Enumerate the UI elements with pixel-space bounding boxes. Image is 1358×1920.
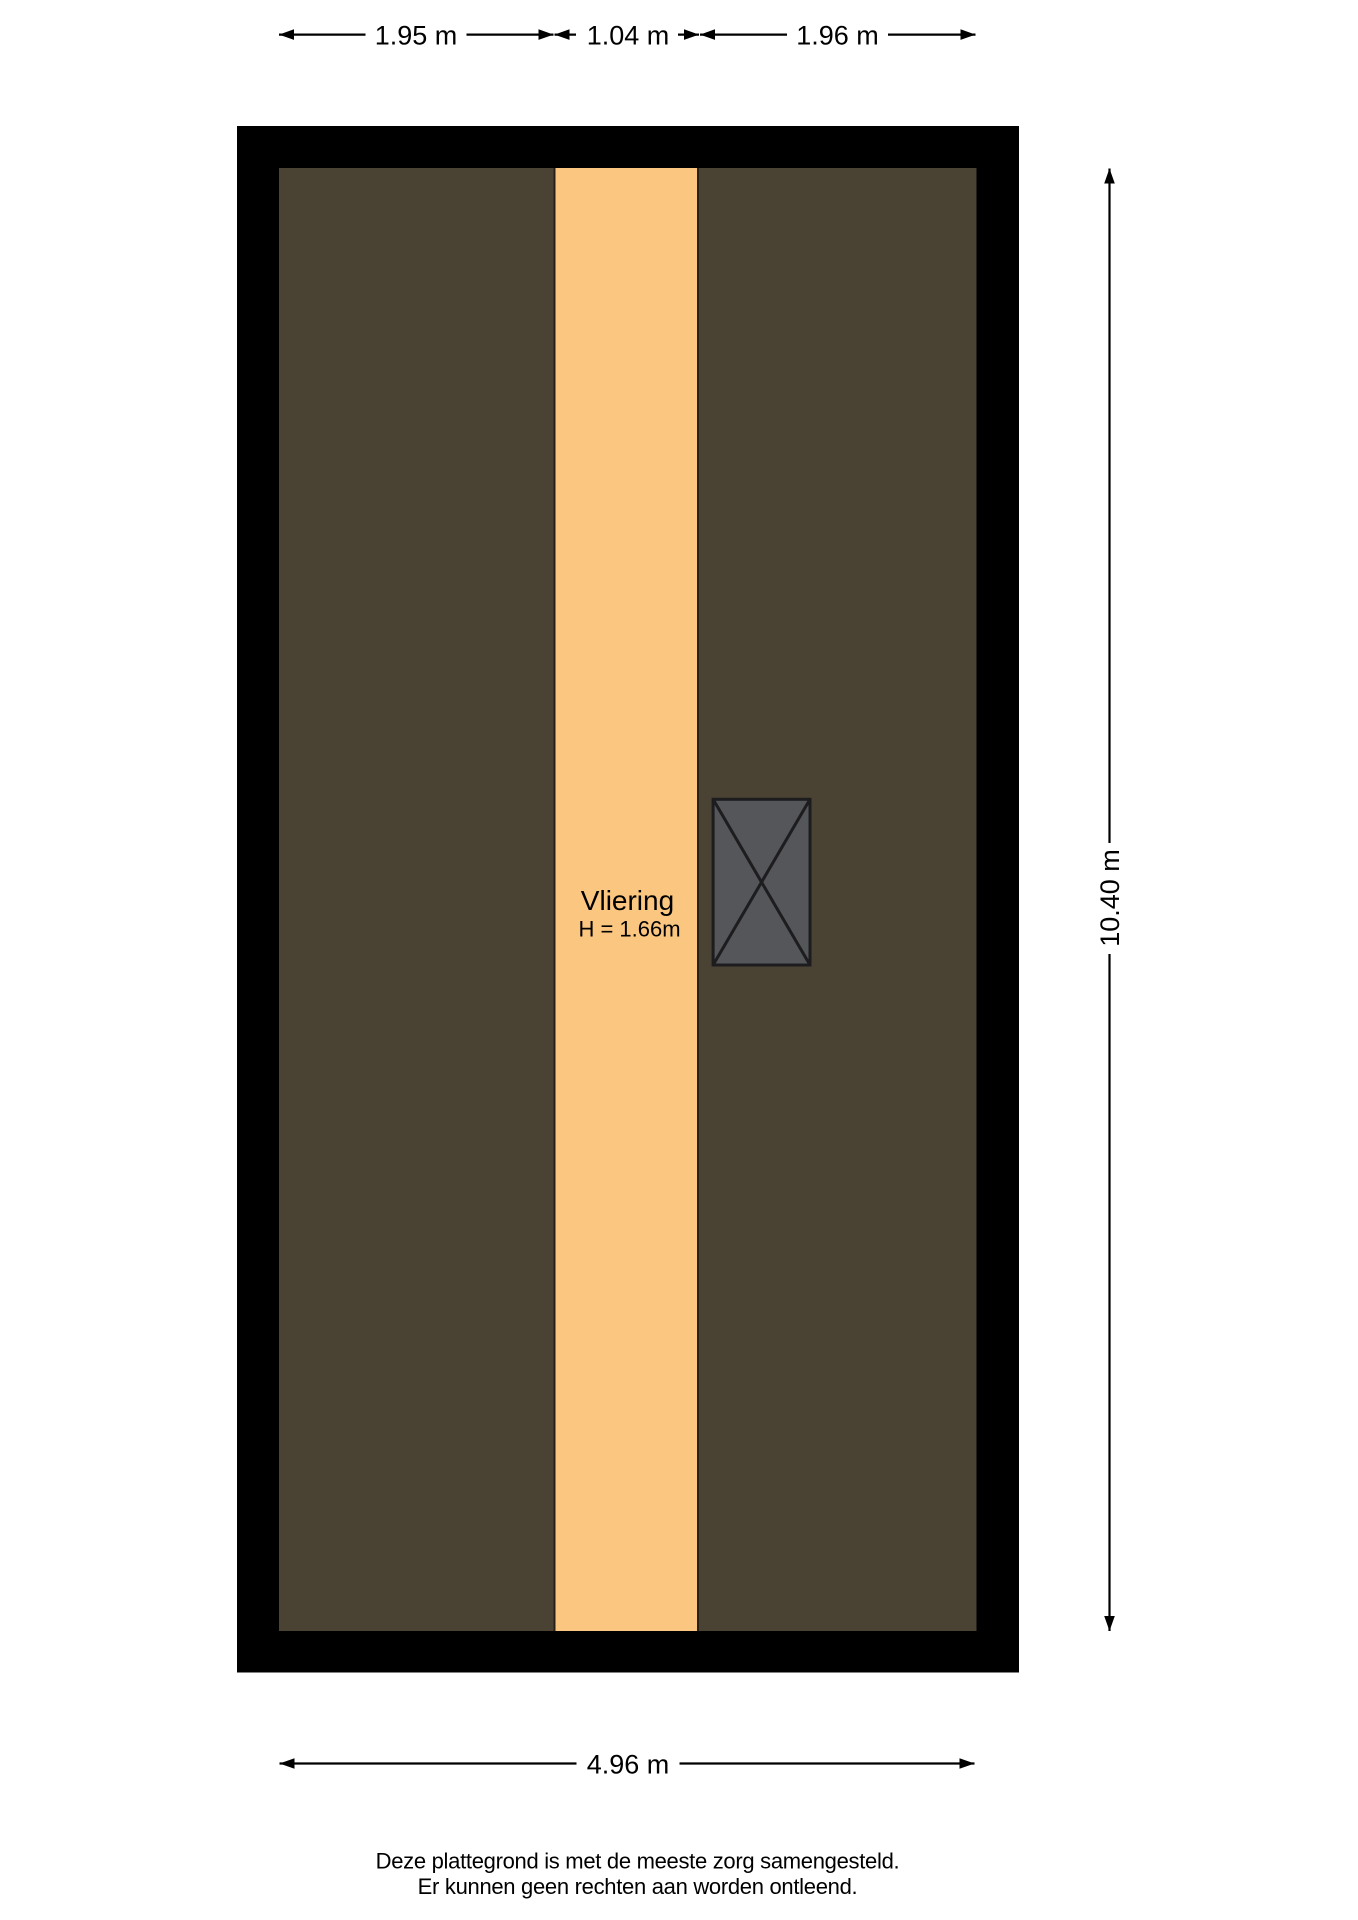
svg-text:1.96 m: 1.96 m <box>796 21 879 51</box>
svg-text:1.04 m: 1.04 m <box>587 21 670 51</box>
svg-text:H = 1.66m: H = 1.66m <box>578 917 680 942</box>
svg-text:1.95 m: 1.95 m <box>375 21 458 51</box>
svg-text:4.96 m: 4.96 m <box>587 1750 670 1780</box>
svg-text:Deze plattegrond is met de mee: Deze plattegrond is met de meeste zorg s… <box>376 1849 900 1874</box>
svg-text:Vliering: Vliering <box>581 885 674 916</box>
svg-text:Er kunnen geen rechten aan wor: Er kunnen geen rechten aan worden ontlee… <box>418 1874 858 1899</box>
svg-text:10.40 m: 10.40 m <box>1095 849 1125 947</box>
